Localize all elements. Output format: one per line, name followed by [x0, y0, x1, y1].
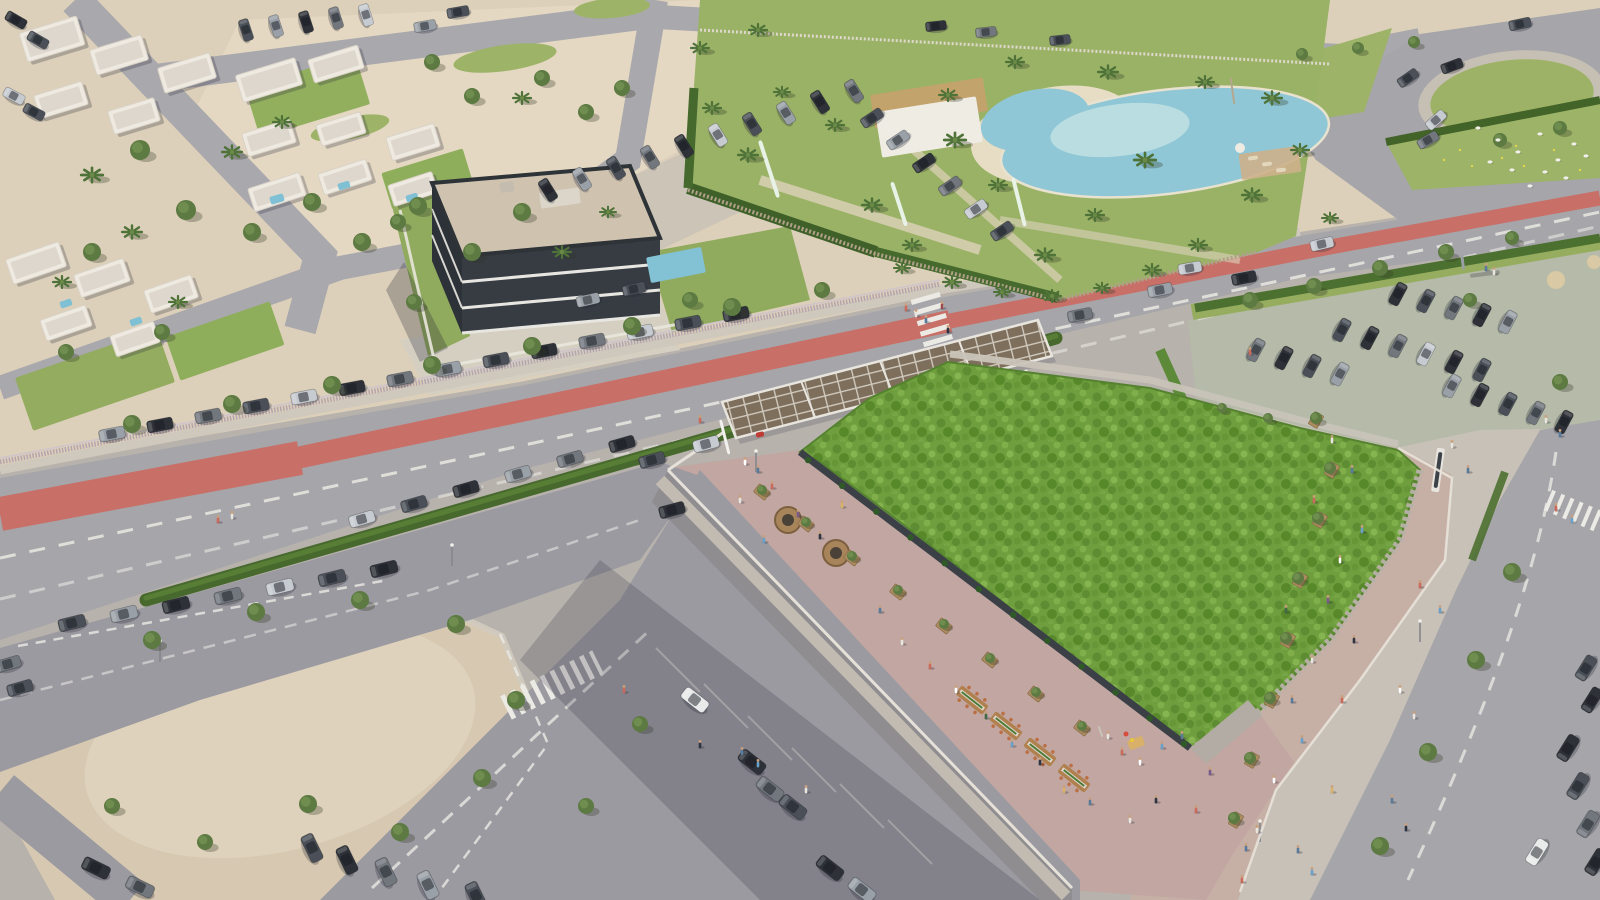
person-body [1571, 518, 1574, 524]
person-body [1361, 528, 1364, 534]
person-body [699, 743, 702, 749]
tree-highlight [325, 378, 335, 388]
person-body [763, 538, 766, 544]
person-body [879, 608, 882, 614]
tree-highlight [515, 205, 525, 215]
person-body [1181, 734, 1184, 740]
stall-goods [1130, 738, 1134, 742]
tree-highlight [249, 605, 259, 615]
tree-highlight [1469, 653, 1479, 663]
car-glass [1055, 36, 1064, 44]
palm-crown [1100, 286, 1104, 290]
person-head [947, 325, 950, 328]
tree-highlight [940, 620, 946, 626]
tree-highlight [1032, 688, 1038, 694]
tree-highlight [1311, 413, 1318, 420]
roof-planter [805, 457, 811, 463]
car-glass [1074, 310, 1085, 320]
sheep-body [1542, 170, 1547, 173]
palm-crown [176, 300, 180, 304]
person-head [1273, 775, 1276, 778]
person-head [1291, 695, 1294, 698]
tree-highlight [156, 326, 165, 335]
person-head [1361, 525, 1364, 528]
person-head [741, 747, 744, 750]
palm-crown [60, 280, 64, 284]
person-body [1311, 658, 1314, 664]
person-head [1139, 757, 1142, 760]
person-head [985, 711, 988, 714]
tree-highlight [426, 56, 435, 65]
person-body [741, 750, 744, 756]
person-head [1571, 515, 1574, 518]
wildflower [1501, 157, 1503, 159]
car-glass [490, 355, 502, 366]
person-head [1195, 805, 1198, 808]
lamp-head [1418, 619, 1422, 623]
person-head [805, 785, 808, 788]
palm-crown [953, 138, 958, 143]
tree-highlight [1554, 376, 1563, 385]
car-glass [682, 318, 694, 329]
person-head [1353, 635, 1356, 638]
car-glass [1238, 273, 1249, 283]
car-glass [1184, 263, 1194, 273]
person-head [757, 759, 760, 762]
person-head [1351, 465, 1354, 468]
person-head [1391, 795, 1394, 798]
person-body [1161, 744, 1164, 750]
person-body [1063, 788, 1066, 794]
roof-planter [1078, 663, 1084, 669]
person-head [699, 740, 702, 743]
sheep-body [1563, 176, 1568, 179]
palm-crown [698, 46, 702, 50]
tree-highlight [1464, 294, 1472, 302]
person-body [1256, 828, 1259, 834]
person-body [1039, 760, 1042, 766]
tree-highlight [625, 319, 635, 329]
tree-highlight [60, 346, 69, 355]
person-head [1311, 867, 1314, 870]
person-body [1467, 468, 1470, 474]
person-body [1405, 826, 1408, 832]
kiosk-pod-core [830, 547, 842, 559]
tree-highlight [1293, 573, 1300, 580]
person-head [941, 301, 944, 304]
lamp-head [754, 449, 758, 453]
car-glass [420, 21, 430, 30]
palm-crown [1000, 290, 1004, 294]
person-body [1353, 638, 1356, 644]
tree-highlight [894, 586, 900, 592]
car-glass [250, 401, 262, 412]
person-body [1285, 608, 1288, 614]
tree-highlight [466, 90, 475, 99]
person-head [1545, 415, 1548, 418]
person-body [1327, 598, 1330, 604]
palm-crown [1050, 294, 1054, 298]
roof-planter [907, 534, 913, 540]
person-body [1301, 738, 1304, 744]
sheep-body [1515, 150, 1520, 153]
person-body [1241, 878, 1244, 884]
palm-crown [910, 243, 914, 247]
sheep-body [1583, 154, 1588, 157]
wildflower [1523, 165, 1525, 167]
car-glass [154, 420, 166, 431]
tree-highlight [580, 106, 589, 115]
person-head [1155, 795, 1158, 798]
person-body [985, 714, 988, 720]
tree-highlight [1264, 414, 1270, 420]
person-head [757, 465, 760, 468]
tree-highlight [353, 593, 363, 603]
tree-highlight [245, 225, 255, 235]
person-head [955, 685, 958, 688]
tree-highlight [85, 245, 95, 255]
tree-highlight [305, 195, 315, 205]
person-head [1063, 785, 1066, 788]
person-body [1313, 498, 1316, 504]
person-body [771, 484, 774, 490]
scene-svg [0, 0, 1600, 900]
tree-highlight [355, 235, 365, 245]
person-body [819, 534, 822, 540]
tree-highlight [986, 654, 992, 660]
tree-highlight [106, 800, 115, 809]
person-head [1339, 555, 1342, 558]
tree-highlight [848, 552, 854, 558]
car-glass [453, 7, 463, 16]
person-body [1439, 608, 1442, 614]
person-body [1555, 506, 1558, 512]
tree-highlight [1506, 232, 1514, 240]
palm-crown [746, 153, 750, 157]
tree-highlight [449, 617, 459, 627]
tree-highlight [816, 284, 825, 293]
lamp-head [1258, 819, 1262, 823]
person-head [739, 495, 742, 498]
palm-crown [1328, 216, 1332, 220]
tree-highlight [1505, 565, 1515, 575]
palm-crown [1203, 80, 1207, 84]
person-head [1249, 347, 1252, 350]
person-body [1155, 798, 1158, 804]
person-head [1467, 465, 1470, 468]
person-head [1439, 605, 1442, 608]
person-body [1413, 714, 1416, 720]
roof-planter [1147, 715, 1153, 721]
person-body [1121, 750, 1124, 756]
car-glass [586, 336, 598, 347]
person-head [901, 637, 904, 640]
person-head [1405, 823, 1408, 826]
wildflower [1515, 145, 1517, 147]
person-head [1107, 731, 1110, 734]
roof-planter [1010, 612, 1016, 618]
person-head [1011, 739, 1014, 742]
sheep-body [1571, 142, 1576, 145]
roof-planter [839, 483, 845, 489]
palm-crown [1150, 268, 1154, 272]
tree-highlight [616, 82, 625, 91]
person-head [879, 605, 882, 608]
sheep-body [1509, 168, 1514, 171]
palm-crown [280, 120, 284, 124]
person-head [1089, 797, 1092, 800]
person-head [231, 511, 234, 514]
person-head [1493, 267, 1496, 270]
wildflower [1579, 169, 1581, 171]
person-head [1399, 685, 1402, 688]
person-head [797, 509, 800, 512]
tree-highlight [1374, 262, 1383, 271]
tree-highlight [145, 633, 155, 643]
tree-highlight [1265, 693, 1272, 700]
person-head [1297, 845, 1300, 848]
person-body [1311, 870, 1314, 876]
tree-highlight [525, 339, 535, 349]
person-body [739, 498, 742, 504]
person-body [699, 418, 702, 424]
palm-crown [606, 210, 610, 214]
tree-highlight [1218, 404, 1224, 410]
car-glass [106, 429, 118, 440]
tree-highlight [1353, 43, 1360, 50]
person-head [1256, 825, 1259, 828]
palm-crown [1043, 253, 1047, 257]
tree-highlight [1281, 633, 1288, 640]
person-head [1419, 580, 1422, 583]
tree-highlight [475, 771, 485, 781]
tree-highlight [758, 486, 764, 492]
person-body [1297, 848, 1300, 854]
person-body [1331, 438, 1334, 444]
person-body [1273, 778, 1276, 784]
person-body [217, 518, 220, 524]
tree-highlight [1297, 49, 1304, 56]
car-glass [1154, 285, 1165, 295]
palm-crown [756, 28, 760, 32]
palm-crown [560, 250, 564, 254]
palm-crown [230, 150, 234, 154]
person-head [1331, 785, 1334, 788]
tree-highlight [1308, 280, 1317, 289]
person-body [1107, 734, 1110, 740]
person-body [1339, 558, 1342, 564]
palm-crown [900, 266, 904, 270]
person-body [941, 304, 944, 310]
tree-highlight [1244, 294, 1253, 303]
roof-planter [873, 508, 879, 514]
palm-crown [870, 203, 874, 207]
tree-highlight [125, 417, 135, 427]
person-body [1291, 698, 1294, 704]
person-body [757, 468, 760, 474]
person-body [905, 306, 908, 312]
tree-highlight [465, 245, 475, 255]
tree-highlight [725, 300, 735, 310]
tree-highlight [1078, 722, 1084, 728]
person-body [1485, 266, 1488, 272]
tree-highlight [301, 797, 311, 807]
tree-highlight [1325, 463, 1332, 470]
palm-crown [90, 173, 95, 178]
tree-highlight [411, 199, 421, 209]
tree-highlight [178, 202, 189, 213]
sheep-body [1495, 138, 1500, 141]
person-head [771, 481, 774, 484]
wildflower [1459, 149, 1461, 151]
person-body [1195, 808, 1198, 814]
person-head [699, 415, 702, 418]
wildflower [1553, 149, 1555, 151]
person-body [1545, 418, 1548, 424]
palm-crown [1013, 60, 1017, 64]
person-body [1419, 583, 1422, 589]
palm-crown [833, 123, 837, 127]
person-head [1341, 695, 1344, 698]
person-body [1089, 800, 1092, 806]
person-body [1331, 788, 1334, 794]
apartment-roof-box [499, 181, 514, 193]
person-head [905, 303, 908, 306]
wildflower [1471, 165, 1473, 167]
palm-crown [946, 93, 950, 97]
tree-highlight [393, 825, 403, 835]
sheep-body [1487, 160, 1492, 163]
palm-crown [1270, 96, 1274, 100]
person-head [1451, 440, 1454, 443]
sheep-body [1537, 132, 1542, 135]
tree-highlight [1554, 122, 1562, 130]
person-head [841, 500, 844, 503]
car-glass [346, 383, 358, 394]
car-glass [931, 22, 940, 30]
person-head [1039, 757, 1042, 760]
car-glass [981, 28, 990, 36]
person-body [929, 664, 932, 670]
kiosk-pod-core [782, 514, 794, 526]
tree-highlight [132, 142, 143, 153]
person-body [623, 688, 626, 694]
person-body [1011, 742, 1014, 748]
person-head [1485, 263, 1488, 266]
person-head [1313, 495, 1316, 498]
person-head [1555, 503, 1558, 506]
person-head [1245, 843, 1248, 846]
pool-umbrella [1235, 143, 1245, 153]
person-head [1161, 741, 1164, 744]
person-body [1391, 798, 1394, 804]
person-head [1331, 435, 1334, 438]
sheep-body [1475, 126, 1480, 129]
tree-highlight [1409, 37, 1416, 44]
rec-hedge-w [688, 88, 694, 188]
tree-highlight [634, 718, 643, 727]
person-head [1311, 655, 1314, 658]
tree-highlight [580, 800, 589, 809]
car-glass [202, 411, 214, 422]
person-body [1139, 760, 1142, 766]
car-glass [298, 392, 310, 403]
person-body [1245, 846, 1248, 852]
roof-planter [1181, 741, 1187, 747]
person-body [955, 688, 958, 694]
person-head [623, 685, 626, 688]
person-head [1285, 605, 1288, 608]
person-body [915, 312, 918, 318]
person-head [915, 309, 918, 312]
tree-highlight [802, 518, 808, 524]
person-body [1493, 270, 1496, 276]
person-body [1341, 698, 1344, 704]
roof-planter [976, 586, 982, 592]
person-body [231, 514, 234, 520]
wildflower [1443, 159, 1445, 161]
person-body [1209, 770, 1212, 776]
aerial-render [0, 0, 1600, 900]
tree-highlight [1229, 813, 1236, 820]
person-head [925, 315, 928, 318]
sheep-body [1527, 184, 1532, 187]
roof-planter [1112, 689, 1118, 695]
person-body [1351, 468, 1354, 474]
roof-planter [942, 560, 948, 566]
person-head [1413, 711, 1416, 714]
palm-crown [1093, 213, 1097, 217]
sheep-body [1555, 158, 1560, 161]
tree-highlight [392, 216, 401, 225]
tree-highlight [425, 358, 435, 368]
stall-goods [1124, 732, 1129, 737]
tree-highlight [1373, 839, 1383, 849]
roof-planter [1044, 638, 1050, 644]
palm-crown [130, 230, 134, 234]
person-head [763, 535, 766, 538]
person-head [1209, 767, 1212, 770]
palm-crown [996, 183, 1000, 187]
palm-crown [710, 106, 714, 110]
person-body [757, 762, 760, 768]
person-body [797, 512, 800, 518]
person-head [1327, 595, 1330, 598]
tree-highlight [199, 836, 208, 845]
person-head [1559, 429, 1562, 432]
person-head [1241, 875, 1244, 878]
person-body [1451, 443, 1454, 449]
palm-crown [1196, 243, 1200, 247]
palm-crown [520, 96, 524, 100]
palm-crown [1298, 148, 1302, 152]
parasol [1547, 271, 1565, 289]
tree-highlight [509, 693, 519, 703]
tree-highlight [1245, 753, 1252, 760]
person-body [841, 503, 844, 509]
tree-highlight [536, 72, 545, 81]
person-head [1121, 747, 1124, 750]
person-body [925, 318, 928, 324]
person-head [929, 661, 932, 664]
palm-crown [1250, 193, 1254, 197]
car-glass [394, 374, 406, 385]
person-body [744, 460, 747, 466]
palm-crown [1143, 158, 1148, 163]
palm-crown [780, 90, 784, 94]
person-body [1249, 350, 1252, 356]
person-head [1181, 731, 1184, 734]
